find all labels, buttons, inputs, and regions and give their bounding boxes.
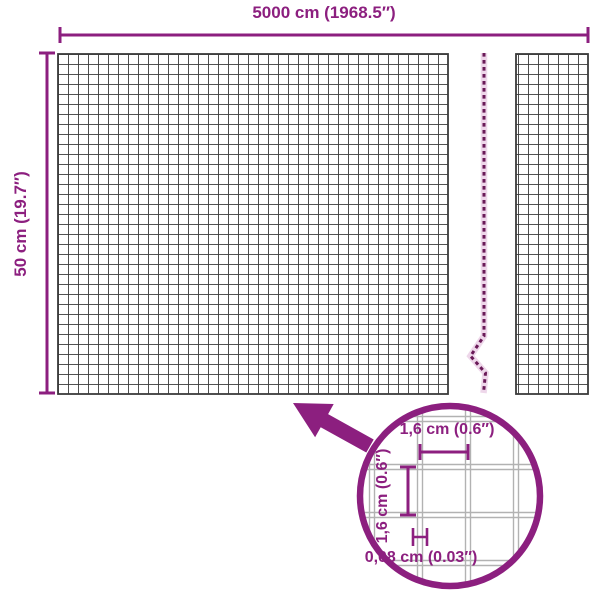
mesh-panel-right bbox=[516, 54, 588, 394]
width-dimension-label: 5000 cm (1968.5″) bbox=[124, 3, 524, 22]
height-dimension-line bbox=[39, 53, 55, 393]
width-dimension-line bbox=[60, 27, 588, 43]
wire-thickness-label: 0,08 cm (0.03″) bbox=[321, 549, 521, 567]
mesh-panel-main bbox=[58, 54, 448, 394]
height-dimension-label: 50 cm (19.7″) bbox=[11, 124, 31, 324]
diagram-graphics bbox=[0, 0, 600, 600]
break-line bbox=[471, 53, 486, 393]
mesh-dimension-diagram: 5000 cm (1968.5″) 50 cm (19.7″) 1,6 cm (… bbox=[0, 0, 600, 600]
